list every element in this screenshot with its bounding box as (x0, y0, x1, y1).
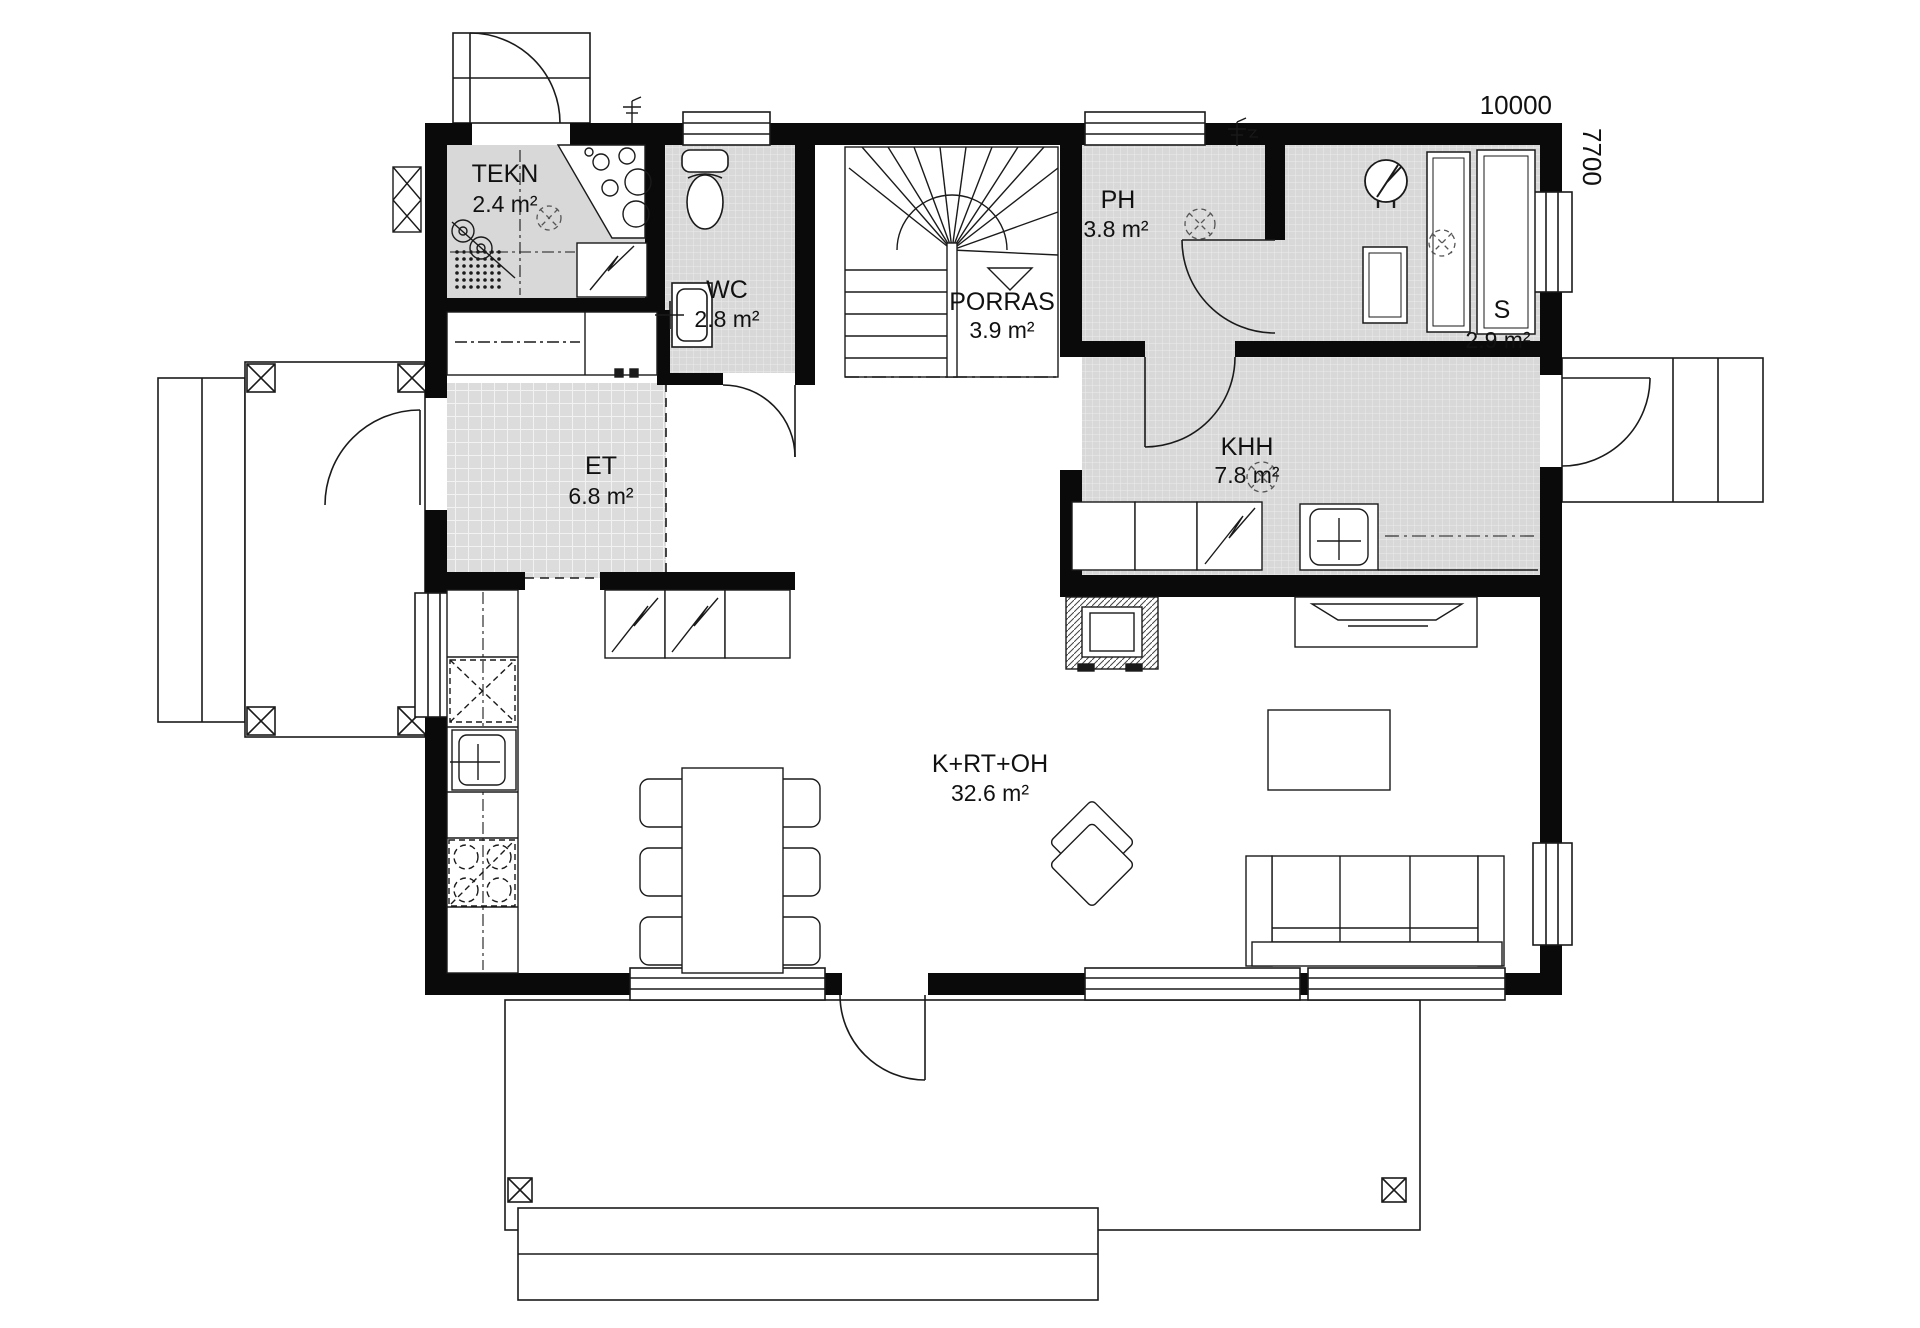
room-area: 6.8 m² (568, 483, 634, 509)
room-area: 2.9 m² (1465, 327, 1531, 353)
room-area: 32.6 m² (951, 780, 1029, 806)
wall-wc-hall (795, 145, 815, 385)
terrace-post-icon (508, 1178, 532, 1202)
room-name: PH (1101, 186, 1136, 214)
khh-sink-icon (1300, 504, 1378, 570)
tv-icon (1312, 604, 1462, 620)
room-name: ET (585, 452, 617, 480)
room-name: PORRAS (949, 288, 1055, 316)
water-heater-unit (577, 243, 647, 297)
window-sauna (1533, 192, 1572, 292)
porch-post-icon (247, 707, 275, 735)
wall-ph-sauna (1265, 145, 1285, 240)
room-area: 2.4 m² (472, 191, 538, 217)
tv-bench (1295, 597, 1477, 647)
wall-ph-left (1060, 145, 1082, 357)
wall-ph-bottom (1060, 341, 1145, 357)
tekn-door-landing (453, 33, 590, 123)
porch-post-icon (247, 364, 275, 392)
entry-porch (245, 362, 426, 737)
terrace-steps (518, 1208, 1098, 1300)
window-living-south-2 (1308, 968, 1505, 1000)
room-area: 3.9 m² (969, 317, 1035, 343)
kitchen-sink-icon (450, 730, 516, 790)
wall-fridge-stub (600, 572, 795, 590)
wall-tekn-wc (645, 145, 665, 310)
room-label-khh: KHH 7.8 m² (1214, 433, 1280, 488)
dimension-height: 7700 (1577, 128, 1607, 186)
wall-kitchen-stub (447, 572, 525, 590)
window-living-east (1533, 843, 1572, 945)
floor-plan-drawing: TEKN 2.4 m² WC 2.8 m² PORRAS 3.9 m² PH 3… (0, 0, 1920, 1328)
room-name: WC (706, 276, 748, 304)
wall-tekn-bottom (447, 298, 665, 312)
wall-khh-living (1060, 575, 1562, 597)
right-porch (1562, 358, 1763, 502)
window-ph (1085, 112, 1205, 145)
tall-cabinet (725, 590, 790, 658)
room-name: S (1494, 296, 1511, 324)
sauna-door-gap-floor (1265, 240, 1285, 341)
entry-closet (447, 312, 657, 377)
room-area: 7.8 m² (1214, 462, 1280, 488)
window-wc (683, 112, 770, 145)
room-name: K+RT+OH (932, 750, 1048, 778)
khh-cabinet (1135, 502, 1197, 570)
fireplace-icon (1066, 597, 1158, 671)
room-area: 3.8 m² (1083, 216, 1149, 242)
room-name: TEKN (472, 160, 539, 188)
sofa (1246, 856, 1504, 966)
room-area: 2.8 m² (694, 306, 760, 332)
fridge-freezer-cabinets (605, 590, 790, 658)
khh-door-gap-floor (1145, 341, 1235, 357)
window-living-south-1 (1085, 968, 1300, 1000)
porch-post-icon (398, 364, 426, 392)
room-floor-et (447, 383, 666, 578)
coffee-table (1268, 710, 1390, 790)
sauna-step (1363, 247, 1407, 323)
dimension-width: 10000 (1480, 90, 1552, 120)
room-floor-ph (1082, 145, 1265, 341)
floor-plan-page: TEKN 2.4 m² WC 2.8 m² PORRAS 3.9 m² PH 3… (0, 0, 1920, 1328)
dining-table (682, 768, 783, 973)
sauna-bench (1427, 152, 1470, 332)
entry-steps (158, 378, 245, 722)
wall-wc-bottom (657, 373, 723, 385)
terrace-post-icon (1382, 1178, 1406, 1202)
khh-cabinet (1072, 502, 1135, 570)
room-name: KHH (1221, 433, 1274, 461)
